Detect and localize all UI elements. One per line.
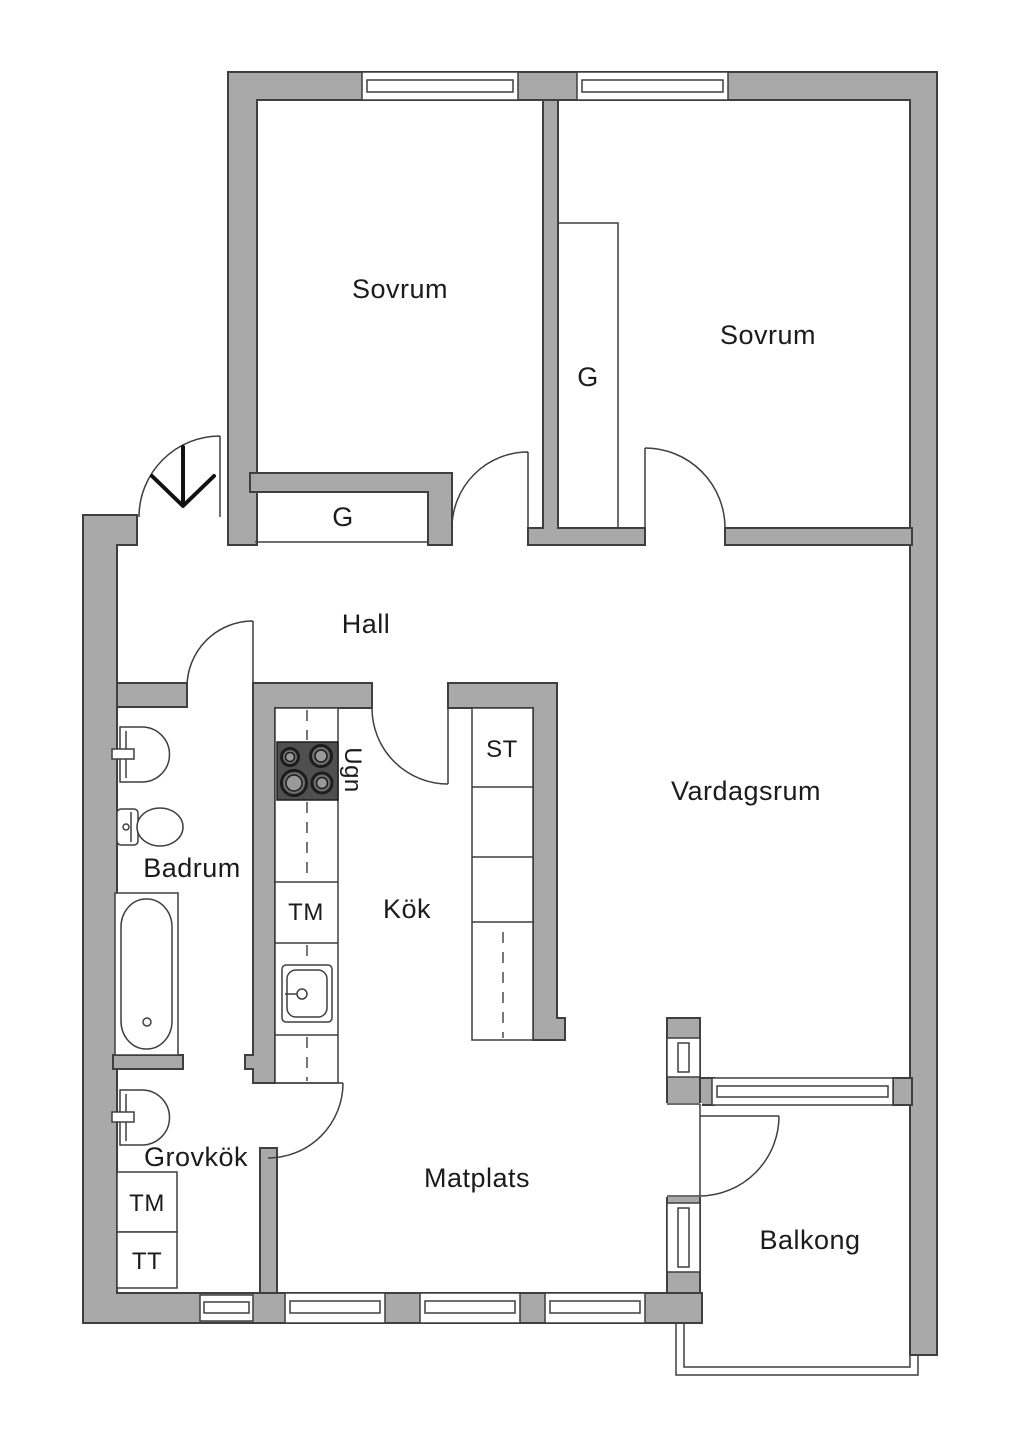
room-label-sovrum-left: Sovrum: [352, 274, 448, 304]
bathtub-icon: [115, 893, 178, 1055]
wall-balcony-stub-right: [893, 1078, 912, 1105]
window-balcony-vertical-1: [667, 1038, 700, 1077]
door-swing-grovkok: [268, 1083, 343, 1158]
closet-label-bedroom-right: G: [577, 362, 599, 392]
room-label-badrum: Badrum: [143, 853, 241, 883]
door-swing-bedroom-left: [452, 452, 528, 528]
stove-icon: [277, 742, 338, 800]
room-label-sovrum-right: Sovrum: [720, 320, 816, 350]
appliance-label-tm-kitchen: TM: [288, 899, 324, 926]
wall-badrum-top: [117, 683, 187, 707]
room-label-matplats: Matplats: [424, 1163, 530, 1193]
window-matplats-3: [545, 1293, 645, 1323]
entrance-arrow-icon: [152, 447, 214, 506]
room-label-grovkok: Grovkök: [144, 1142, 248, 1172]
closet-label-hall: G: [332, 502, 354, 532]
window-grovkok: [200, 1295, 253, 1321]
wall-grovkok-east: [260, 1148, 277, 1293]
door-swing-bedroom-right: [645, 448, 725, 528]
floor-plan-page: Sovrum Sovrum G G Hall Vardagsrum ST Ugn…: [0, 0, 1024, 1448]
door-swing-badrum: [187, 621, 253, 687]
room-label-vardagsrum: Vardagsrum: [671, 776, 821, 806]
toilet-icon: [117, 808, 183, 846]
door-swing-balcony: [700, 1116, 779, 1196]
appliance-label-tm-grovkok: TM: [129, 1190, 165, 1217]
door-swing-kitchen: [372, 708, 448, 784]
appliance-label-ugn: Ugn: [339, 747, 366, 793]
kitchen-sink-icon: [282, 965, 332, 1022]
window-matplats-2: [420, 1293, 520, 1323]
room-label-hall: Hall: [342, 609, 391, 639]
wall-bedroom-divider: [528, 100, 645, 545]
window-bedroom-right: [577, 72, 728, 100]
cabinet-label-st: ST: [486, 736, 518, 763]
room-label-balkong: Balkong: [759, 1225, 860, 1255]
window-matplats-1: [285, 1293, 385, 1323]
wall-bedroom-right-bottom: [725, 528, 912, 545]
floor-plan: Sovrum Sovrum G G Hall Vardagsrum ST Ugn…: [0, 0, 1024, 1448]
bathroom-sink-icon: [112, 727, 170, 782]
room-label-kok: Kök: [383, 894, 431, 924]
window-balcony-horizontal: [712, 1078, 893, 1105]
window-bedroom-left: [362, 72, 518, 100]
balcony-door-opening: [665, 1103, 702, 1197]
appliance-label-tt: TT: [132, 1248, 162, 1275]
grovkok-sink-icon: [112, 1090, 170, 1145]
window-balcony-vertical-2: [667, 1203, 700, 1272]
wall-badrum-grovkok-divider: [113, 1055, 183, 1069]
